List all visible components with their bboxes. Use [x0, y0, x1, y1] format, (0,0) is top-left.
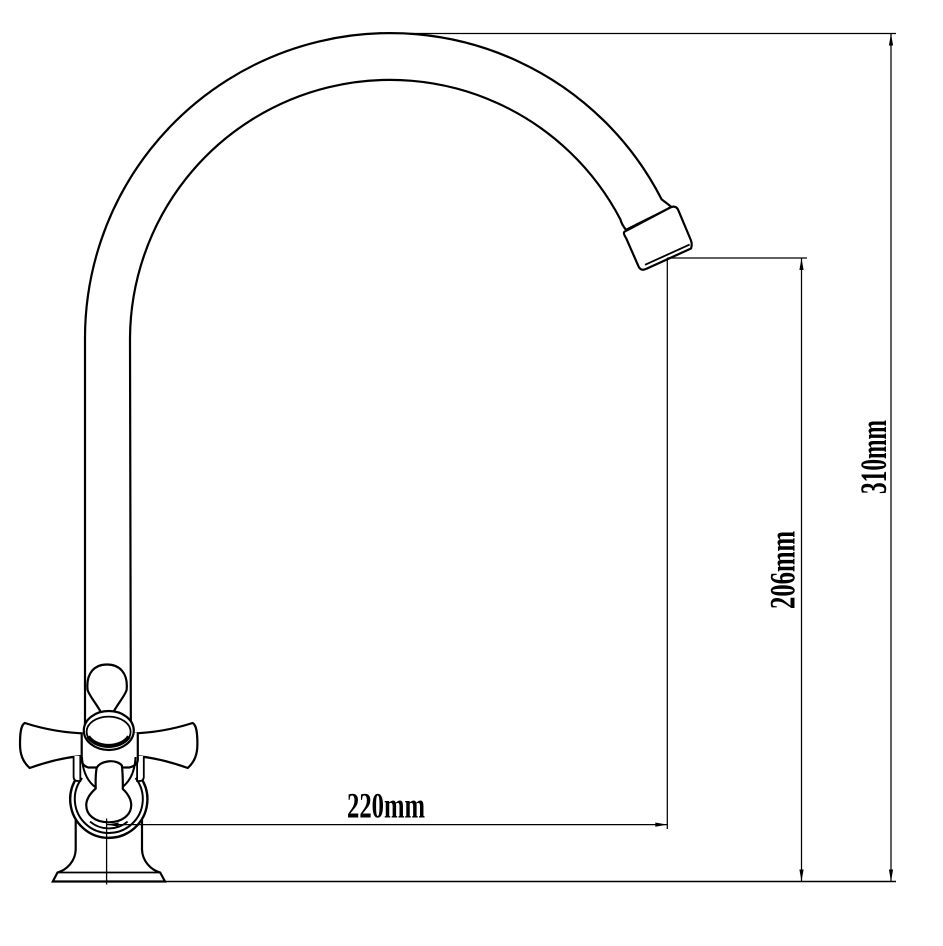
svg-text:220mm: 220mm	[347, 786, 425, 826]
svg-text:310mm: 310mm	[854, 420, 895, 494]
svg-text:206mm: 206mm	[763, 531, 803, 609]
